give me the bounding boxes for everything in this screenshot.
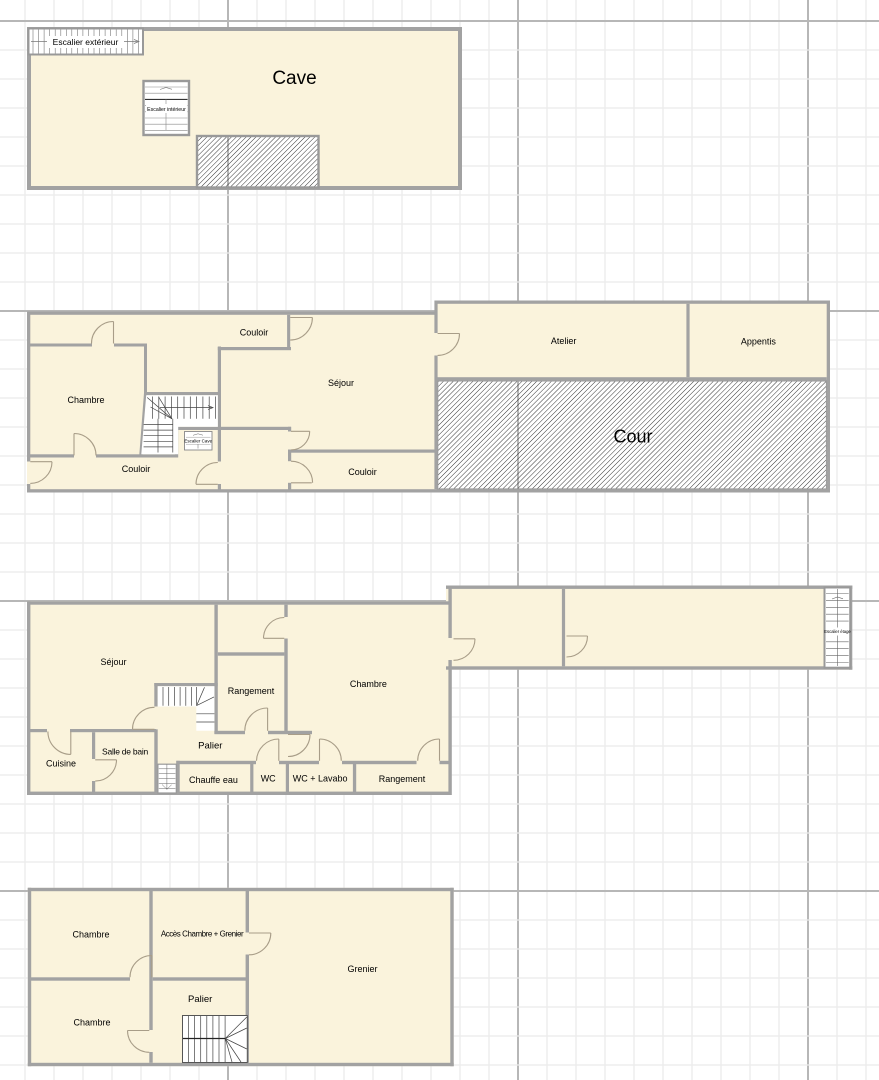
svg-text:Cave: Cave: [272, 68, 316, 89]
svg-text:Rangement: Rangement: [228, 686, 275, 696]
svg-text:Chambre: Chambre: [73, 1017, 110, 1027]
svg-text:Grenier: Grenier: [347, 964, 377, 974]
svg-text:Couloir: Couloir: [240, 328, 269, 338]
svg-text:WC: WC: [261, 774, 276, 784]
svg-text:Escalier extérieur: Escalier extérieur: [53, 37, 119, 47]
svg-text:Palier: Palier: [188, 994, 212, 1005]
svg-text:Palier: Palier: [198, 740, 222, 751]
svg-text:Escalier étage: Escalier étage: [824, 629, 851, 634]
svg-text:Séjour: Séjour: [100, 657, 126, 667]
svg-text:Couloir: Couloir: [122, 464, 151, 474]
svg-text:Rangement: Rangement: [379, 774, 426, 784]
svg-text:Escalier intérieur: Escalier intérieur: [147, 107, 186, 113]
svg-text:Chauffe eau: Chauffe eau: [189, 775, 238, 785]
svg-text:Appentis: Appentis: [741, 336, 777, 346]
svg-text:Atelier: Atelier: [551, 336, 577, 346]
svg-text:Accès Chambre + Grenier: Accès Chambre + Grenier: [161, 930, 244, 939]
svg-text:Chambre: Chambre: [72, 929, 109, 939]
svg-text:Salle de bain: Salle de bain: [102, 747, 148, 757]
svg-text:Escalier Cave: Escalier Cave: [184, 439, 212, 444]
svg-text:Chambre: Chambre: [350, 679, 387, 689]
svg-text:Couloir: Couloir: [348, 467, 377, 477]
svg-text:Cour: Cour: [613, 427, 652, 447]
svg-text:Cuisine: Cuisine: [46, 758, 76, 768]
svg-text:Séjour: Séjour: [328, 378, 354, 388]
svg-text:WC + Lavabo: WC + Lavabo: [293, 774, 348, 784]
svg-text:Chambre: Chambre: [67, 395, 104, 405]
